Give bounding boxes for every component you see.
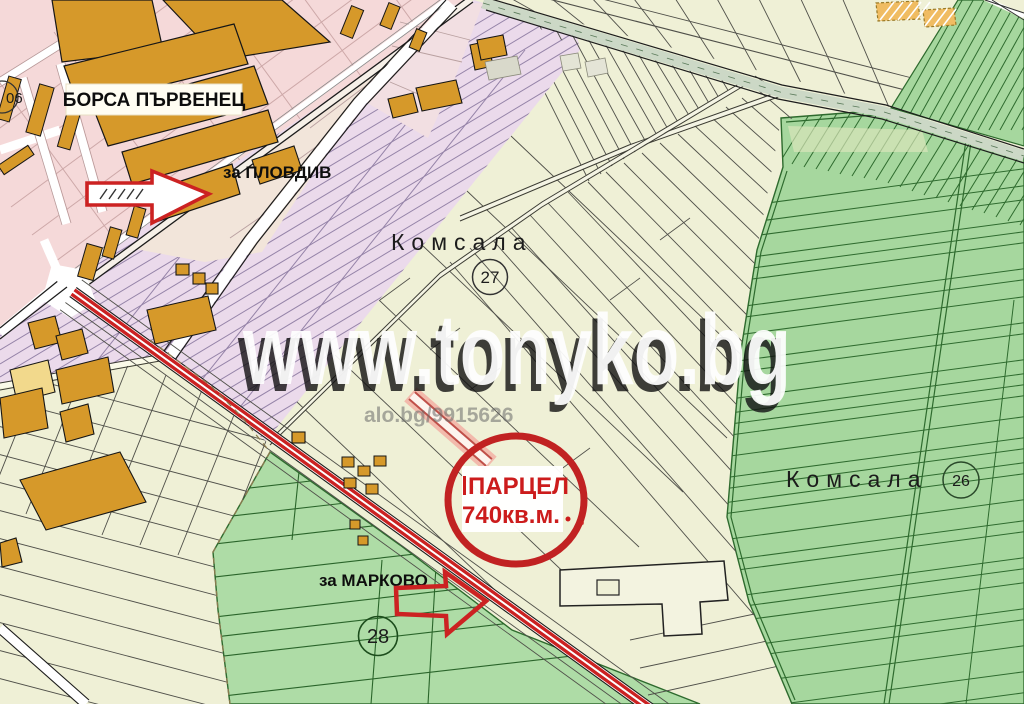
svg-text:28: 28: [367, 626, 389, 648]
svg-text:www.tonyko.bg: www.tonyko.bg: [242, 294, 791, 406]
svg-text:06: 06: [6, 90, 23, 107]
svg-text:27: 27: [481, 268, 500, 287]
svg-text:ПАРЦЕЛ: ПАРЦЕЛ: [468, 473, 569, 500]
svg-text:alo.bg/9915626: alo.bg/9915626: [364, 404, 513, 427]
svg-text:за ПЛОВДИВ: за ПЛОВДИВ: [223, 163, 331, 182]
svg-text:26: 26: [952, 473, 970, 490]
svg-text:БОРСА ПЪРВЕНЕЦ: БОРСА ПЪРВЕНЕЦ: [63, 90, 246, 111]
svg-text:Комсала: Комсала: [786, 466, 928, 492]
svg-text:Комсала: Комсала: [391, 229, 533, 255]
svg-text:740кв.м.: 740кв.м.: [462, 502, 560, 529]
